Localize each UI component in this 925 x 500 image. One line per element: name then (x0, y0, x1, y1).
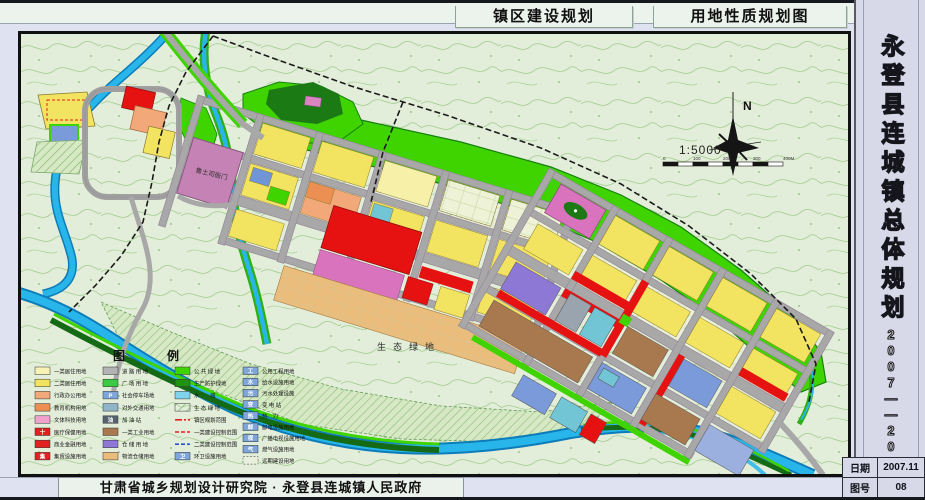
svg-text:加 油 站: 加 油 站 (122, 416, 142, 424)
svg-text:一类居住用地: 一类居住用地 (54, 367, 87, 375)
svg-text:燃气设施用地: 燃气设施用地 (262, 446, 295, 454)
legend-title: 图 例 (113, 348, 185, 363)
svg-text:工: 工 (248, 368, 254, 375)
svg-text:道 路 用 地: 道 路 用 地 (122, 367, 149, 375)
svg-text:水: 水 (248, 378, 254, 386)
svg-text:镇区规划范围: 镇区规划范围 (194, 416, 226, 424)
svg-text:物流仓储用地: 物流仓储用地 (122, 453, 155, 461)
svg-text:污水处理设施: 污水处理设施 (262, 390, 295, 398)
sheet-info-table: 日期 2007.11 图号 08 (842, 457, 925, 498)
title-tab-landuse-plan: 用地性质规划图 (653, 6, 847, 28)
svg-text:仓 储 用 地: 仓 储 用 地 (122, 441, 149, 449)
svg-text:热 力: 热 力 (262, 412, 278, 420)
svg-text:公用工程用地: 公用工程用地 (262, 367, 295, 375)
svg-text:十: 十 (40, 428, 46, 436)
svg-text:视: 视 (248, 434, 254, 442)
svg-text:商业金融用地: 商业金融用地 (54, 441, 87, 449)
svg-text:给水设施用地: 给水设施用地 (262, 379, 295, 387)
svg-text:400M: 400M (783, 156, 795, 161)
scale-text: 1:5000 (679, 143, 722, 157)
svg-text:300: 300 (753, 156, 761, 161)
svg-text:广播电视设施用地: 广播电视设施用地 (262, 435, 306, 443)
title-sidebar: 永登县连城镇总体规划 2007——2020 (854, 0, 925, 500)
svg-text:邮电设施用地: 邮电设施用地 (262, 423, 295, 431)
svg-text:生 态 绿 地: 生 态 绿 地 (194, 404, 221, 412)
svg-text:医疗保健用地: 医疗保健用地 (54, 428, 87, 436)
north-label: N (743, 99, 752, 113)
svg-text:100: 100 (693, 156, 701, 161)
svg-text:热: 热 (248, 412, 254, 420)
svg-text:远期建设用地: 远期建设用地 (262, 457, 295, 465)
svg-text:文体科技用地: 文体科技用地 (54, 416, 87, 424)
svg-text:200: 200 (723, 156, 731, 161)
svg-text:行政办公用地: 行政办公用地 (54, 392, 87, 400)
title-sidebar-inner: 永登县连城镇总体规划 2007——2020 (863, 0, 919, 458)
table-row: 日期 2007.11 (843, 458, 925, 478)
svg-text:一类工业用地: 一类工业用地 (122, 428, 155, 436)
title-tab-construction-plan: 镇区建设规划 (455, 6, 633, 28)
svg-text:邮: 邮 (248, 423, 254, 431)
date-value: 2007.11 (878, 458, 925, 478)
svg-text:公 共 绿 地: 公 共 绿 地 (194, 367, 221, 375)
credit-box: 甘肃省城乡规划设计研究院 · 永登县连城镇人民政府 (58, 477, 464, 499)
svg-text:集贸设施用地: 集贸设施用地 (54, 453, 87, 461)
map-panel: N 1:5000 0100200300400M 图 例 一类居住用地二类居住用地… (18, 31, 851, 477)
svg-text:污: 污 (248, 389, 254, 397)
svg-text:卫: 卫 (180, 453, 186, 460)
svg-text:环卫设施用地: 环卫设施用地 (194, 453, 227, 461)
plan-title-vertical: 永登县连城镇总体规划 (874, 34, 908, 324)
svg-text:气: 气 (247, 445, 254, 453)
eco-area-label: 生态绿地 (377, 341, 441, 352)
svg-text:二类建设控制范围: 二类建设控制范围 (194, 441, 237, 449)
svg-text:变: 变 (248, 401, 254, 409)
svg-text:一类建设控制范围: 一类建设控制范围 (194, 428, 237, 436)
svg-text:变 电 站: 变 电 站 (262, 401, 282, 409)
svg-text:油: 油 (108, 416, 114, 424)
svg-text:P: P (109, 393, 113, 399)
svg-text:社会停车场地: 社会停车场地 (122, 392, 155, 400)
svg-text:集: 集 (39, 452, 46, 460)
svg-text:教育机构用地: 教育机构用地 (54, 404, 87, 412)
svg-text:对外交通用地: 对外交通用地 (122, 404, 155, 412)
date-label: 日期 (843, 458, 878, 478)
table-row: 图号 08 (843, 478, 925, 498)
planning-map-canvas: N 1:5000 0100200300400M 图 例 一类居住用地二类居住用地… (21, 34, 848, 474)
svg-text:生产防护绿地: 生产防护绿地 (194, 380, 227, 388)
sheet-number-value: 08 (878, 478, 925, 498)
sheet-number-label: 图号 (843, 478, 878, 498)
svg-text:广 场 用 地: 广 场 用 地 (122, 380, 149, 388)
svg-text:二类居住用地: 二类居住用地 (54, 380, 87, 388)
svg-text:水 域: 水 域 (194, 392, 216, 400)
